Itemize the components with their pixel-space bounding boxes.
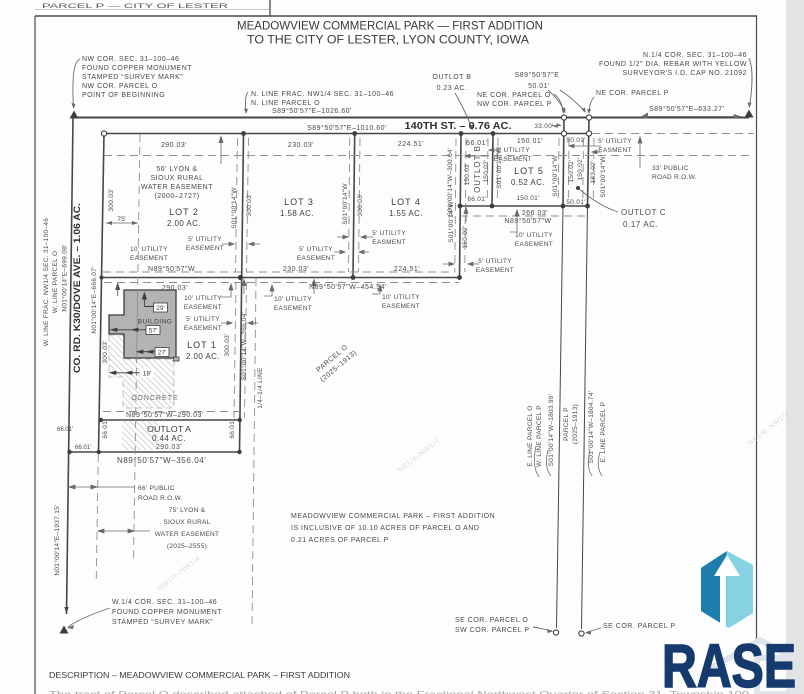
svg-text:N89°50'57"W: N89°50'57"W — [504, 217, 551, 225]
svg-text:183.02': 183.02' — [590, 160, 597, 183]
svg-text:75': 75' — [117, 216, 126, 223]
svg-text:(2025–2555): (2025–2555) — [167, 543, 207, 550]
svg-text:300.03': 300.03' — [246, 193, 253, 216]
svg-text:LOT 2: LOT 2 — [169, 207, 199, 217]
svg-text:EASEMENT: EASEMENT — [184, 304, 222, 311]
svg-text:10' UTILITY: 10' UTILITY — [382, 294, 420, 301]
svg-text:N89°50'57"W–290.03': N89°50'57"W–290.03' — [126, 411, 204, 419]
svg-text:0.44 AC.: 0.44 AC. — [152, 434, 186, 443]
svg-text:0.17 AC.: 0.17 AC. — [623, 220, 659, 229]
svg-text:NW COR. SEC. 31–100–46: NW COR. SEC. 31–100–46 — [82, 56, 179, 63]
svg-text:BUILDING: BUILDING — [138, 319, 173, 326]
svg-text:SW COR. PARCEL P: SW COR. PARCEL P — [455, 627, 530, 634]
svg-text:10' UTILITY: 10' UTILITY — [130, 246, 168, 253]
svg-text:66.01': 66.01' — [102, 419, 109, 438]
svg-text:N01°00'14"E–1937.15': N01°00'14"E–1937.15' — [53, 504, 61, 575]
svg-text:150.01': 150.01' — [516, 195, 539, 202]
svg-text:5' UTILITY: 5' UTILITY — [478, 258, 512, 265]
svg-text:PARCEL P: PARCEL P — [563, 407, 570, 441]
svg-text:290.03': 290.03' — [156, 444, 182, 451]
svg-text:OUTLOT A: OUTLOT A — [147, 424, 191, 434]
svg-text:SURVEYOR'S I.D. CAP NO. 21092: SURVEYOR'S I.D. CAP NO. 21092 — [622, 70, 747, 77]
svg-text:LOT 4: LOT 4 — [391, 197, 421, 207]
svg-text:EASEMENT: EASEMENT — [494, 156, 532, 163]
svg-text:PARCEL P — CITY OF LESTER: PARCEL P — CITY OF LESTER — [42, 3, 229, 10]
svg-text:50.01': 50.01' — [528, 83, 550, 90]
svg-text:S01°00'14"W: S01°00'14"W — [341, 183, 349, 225]
svg-text:LOT 1: LOT 1 — [187, 340, 217, 350]
svg-text:EASEMENT: EASEMENT — [274, 305, 312, 312]
svg-text:(2000–2727): (2000–2727) — [154, 193, 199, 200]
svg-text:224.51': 224.51' — [394, 266, 420, 273]
svg-text:S01°00'14"W: S01°00'14"W — [447, 201, 455, 243]
svg-text:N01°00'14"E–699.08': N01°00'14"E–699.08' — [61, 244, 69, 311]
svg-text:S89°50'57"E–1026.60': S89°50'57"E–1026.60' — [272, 107, 352, 115]
svg-text:TO THE CITY OF LESTER, LYON CO: TO THE CITY OF LESTER, LYON COUNTY, IOWA — [247, 35, 529, 47]
svg-text:N89°50'57"W–454.54': N89°50'57"W–454.54' — [309, 283, 387, 291]
svg-text:0.21 ACRES OF PARCEL P: 0.21 ACRES OF PARCEL P — [291, 537, 389, 544]
svg-text:5' UTILITY: 5' UTILITY — [372, 230, 406, 237]
svg-text:5' UTILITY: 5' UTILITY — [186, 316, 220, 323]
svg-text:EASEMENT: EASEMENT — [297, 255, 335, 262]
svg-text:N. LINE FRAC. NW1/4 SEC. 31–10: N. LINE FRAC. NW1/4 SEC. 31–100–46 — [251, 91, 394, 98]
svg-text:W.1/4 COR. SEC. 31–100–46: W.1/4 COR. SEC. 31–100–46 — [112, 599, 217, 606]
svg-text:WATER EASEMENT: WATER EASEMENT — [155, 531, 220, 538]
svg-text:2.00 AC.: 2.00 AC. — [167, 219, 201, 228]
svg-text:MEADOWVIEW COMMERCIAL PARK — F: MEADOWVIEW COMMERCIAL PARK — FIRST ADDIT… — [237, 21, 543, 33]
svg-text:290.03': 290.03' — [161, 142, 187, 149]
svg-text:150.01': 150.01' — [517, 138, 543, 145]
svg-text:18': 18' — [143, 371, 151, 378]
svg-text:S01°00'14"W–1804.74': S01°00'14"W–1804.74' — [587, 391, 595, 464]
svg-text:1/4–1/4 LINE: 1/4–1/4 LINE — [257, 367, 264, 409]
svg-text:57': 57' — [149, 328, 157, 335]
svg-text:66' PUBLIC: 66' PUBLIC — [138, 485, 175, 492]
svg-text:1.58 AC.: 1.58 AC. — [280, 209, 314, 218]
svg-text:300.03': 300.03' — [357, 193, 364, 216]
svg-text:CO. RD. K30/DOVE AVE. – 1.06: CO. RD. K30/DOVE AVE. – 1.06 AC. — [72, 203, 82, 373]
svg-text:S89°50'57"E–1010.60': S89°50'57"E–1010.60' — [307, 124, 387, 132]
svg-text:NE COR. PARCEL O: NE COR. PARCEL O — [477, 92, 551, 99]
svg-text:300.03': 300.03' — [102, 340, 109, 363]
svg-text:(2025–1913): (2025–1913) — [572, 404, 579, 444]
svg-text:ROAD R.O.W.: ROAD R.O.W. — [138, 495, 183, 502]
svg-text:CONCRETE: CONCRETE — [131, 395, 178, 402]
svg-text:S01°00'14"W–366.04': S01°00'14"W–366.04' — [240, 312, 248, 381]
svg-text:S89°50'57"E–633.27': S89°50'57"E–633.27' — [649, 105, 724, 113]
svg-text:IS INCLUSIVE OF 10.10 ACRES OF: IS INCLUSIVE OF 10.10 ACRES OF PARCEL O … — [291, 525, 479, 532]
svg-text:OUTLOT C: OUTLOT C — [621, 208, 666, 217]
svg-text:S01°00'14"W–1803.99': S01°00'14"W–1803.99' — [547, 394, 555, 467]
svg-text:ROAD R.O.W.: ROAD R.O.W. — [652, 174, 697, 181]
svg-text:LOT 5: LOT 5 — [514, 166, 544, 176]
svg-text:RASE: RASE — [662, 632, 796, 694]
svg-text:E. LINE PARCEL O: E. LINE PARCEL O — [527, 405, 534, 466]
svg-text:NW COR. PARCEL O: NW COR. PARCEL O — [82, 83, 158, 90]
svg-text:EASEMENT: EASEMENT — [476, 267, 514, 274]
svg-text:66.01': 66.01' — [467, 196, 486, 203]
svg-text:SE COR. PARCEL P: SE COR. PARCEL P — [603, 623, 676, 630]
svg-text:300.03': 300.03' — [224, 333, 231, 356]
svg-text:EASEMENT: EASEMENT — [382, 303, 420, 310]
svg-text:E. LINE PARCEL P: E. LINE PARCEL P — [600, 402, 607, 462]
svg-text:75' LYON &: 75' LYON & — [169, 507, 206, 514]
svg-text:10' UTILITY: 10' UTILITY — [184, 295, 222, 302]
svg-text:S01°00'14"W: S01°00'14"W — [230, 187, 238, 229]
svg-text:27': 27' — [158, 350, 166, 357]
svg-text:EASMENT: EASMENT — [372, 239, 406, 246]
svg-text:5' UTILITY: 5' UTILITY — [496, 147, 530, 154]
svg-text:NW COR. PARCEL P: NW COR. PARCEL P — [477, 101, 552, 108]
svg-text:5' UTILITY: 5' UTILITY — [299, 246, 333, 253]
svg-text:EASEMENT: EASEMENT — [186, 245, 224, 252]
svg-text:N.1/4 COR. SEC. 31–100–46: N.1/4 COR. SEC. 31–100–46 — [643, 52, 747, 59]
svg-text:STAMPED “SURVEY MARK”: STAMPED “SURVEY MARK” — [82, 74, 183, 81]
svg-text:66.01': 66.01' — [229, 419, 236, 438]
svg-text:N. LINE PARCEL O: N. LINE PARCEL O — [251, 100, 320, 107]
svg-text:DESCRIPTION – MEADOWVIEW COMME: DESCRIPTION – MEADOWVIEW COMMERCIAL PARK… — [49, 671, 350, 680]
svg-text:N89°50'57"W: N89°50'57"W — [148, 265, 195, 273]
svg-text:SIOUX RURAL: SIOUX RURAL — [151, 175, 204, 182]
svg-text:150.02': 150.02' — [568, 159, 575, 182]
svg-text:EASEMENT: EASEMENT — [184, 325, 222, 332]
svg-text:150.02': 150.02' — [464, 162, 471, 185]
svg-text:FOUND COPPER MONUMENT: FOUND COPPER MONUMENT — [82, 65, 192, 72]
svg-text:66.01': 66.01' — [75, 445, 91, 451]
svg-text:266.03': 266.03' — [522, 210, 548, 217]
svg-text:230.03': 230.03' — [283, 266, 309, 273]
svg-text:140TH ST. – 0.76 AC.: 140TH ST. – 0.76 AC. — [405, 120, 512, 132]
svg-text:29': 29' — [156, 305, 164, 312]
svg-text:150.02': 150.02' — [462, 225, 469, 248]
svg-text:W. LINE PARCEL P: W. LINE PARCEL P — [536, 405, 543, 467]
svg-text:33.00': 33.00' — [534, 123, 553, 130]
svg-text:66.01': 66.01' — [57, 427, 73, 433]
svg-text:5' UTILITY: 5' UTILITY — [598, 138, 632, 145]
svg-text:W. LINE FRAC. NW1/4 SEC. 31–10: W. LINE FRAC. NW1/4 SEC. 31–100–46 — [43, 218, 50, 346]
svg-text:LOT 3: LOT 3 — [284, 197, 314, 207]
svg-text:0.23 AC.: 0.23 AC. — [437, 85, 468, 92]
svg-text:300.03': 300.03' — [108, 188, 115, 211]
svg-text:The tract of Parcel O describe: The tract of Parcel O described attached… — [49, 690, 750, 694]
svg-text:EASMENT: EASMENT — [598, 147, 632, 154]
svg-text:0.52 AC.: 0.52 AC. — [511, 178, 545, 187]
svg-text:EASEMENT: EASEMENT — [515, 241, 553, 248]
svg-text:290.03': 290.03' — [162, 285, 188, 292]
svg-text:POINT OF BEGINNING: POINT OF BEGINNING — [82, 92, 165, 99]
svg-text:NE COR. PARCEL P: NE COR. PARCEL P — [596, 90, 669, 97]
svg-text:S01°00'14"W: S01°00'14"W — [599, 156, 607, 198]
svg-text:OUTLOT B: OUTLOT B — [433, 74, 472, 81]
svg-text:FOUND COPPER MONUMENT: FOUND COPPER MONUMENT — [112, 609, 222, 616]
svg-text:MEADOWVIEW COMMERCIAL PARK – F: MEADOWVIEW COMMERCIAL PARK – FIRST ADDIT… — [291, 513, 495, 520]
svg-text:S89°50'57"E: S89°50'57"E — [515, 71, 560, 79]
svg-text:1.55 AC.: 1.55 AC. — [389, 209, 423, 218]
svg-text:224.51': 224.51' — [398, 141, 424, 148]
svg-text:10' UTILITY: 10' UTILITY — [274, 296, 312, 303]
svg-text:EASEMENT: EASEMENT — [130, 255, 168, 262]
svg-text:OUTLOT B: OUTLOT B — [473, 145, 482, 193]
svg-text:2.00 AC.: 2.00 AC. — [186, 352, 220, 361]
svg-text:5' UTILITY: 5' UTILITY — [188, 236, 222, 243]
svg-text:50.01': 50.01' — [566, 199, 585, 206]
svg-text:N01°00'14"E–666.07': N01°00'14"E–666.07' — [90, 266, 98, 333]
svg-text:10' UTILITY: 10' UTILITY — [515, 232, 553, 239]
svg-text:S01°00'14"W: S01°00'14"W — [551, 155, 559, 197]
svg-text:150.02': 150.02' — [577, 157, 584, 180]
svg-text:150.02': 150.02' — [483, 159, 490, 182]
svg-text:56' LYON &: 56' LYON & — [156, 166, 197, 173]
svg-text:SIOUX RURAL: SIOUX RURAL — [163, 519, 210, 526]
svg-text:WATER EASEMENT: WATER EASEMENT — [141, 184, 213, 191]
svg-text:FOUND 1/2" DIA. REBAR WITH YEL: FOUND 1/2" DIA. REBAR WITH YELLOW — [599, 61, 747, 68]
svg-text:SE COR. PARCEL O: SE COR. PARCEL O — [455, 617, 528, 624]
svg-text:STAMPED “SURVEY MARK”: STAMPED “SURVEY MARK” — [112, 619, 213, 626]
svg-text:W. LINE PARCEL O: W. LINE PARCEL O — [52, 251, 59, 314]
svg-text:50.01': 50.01' — [566, 137, 585, 144]
svg-text:33' PUBLIC: 33' PUBLIC — [652, 165, 689, 172]
svg-text:N89°50'57"W–356.04': N89°50'57"W–356.04' — [117, 456, 206, 465]
svg-text:230.03': 230.03' — [288, 142, 314, 149]
